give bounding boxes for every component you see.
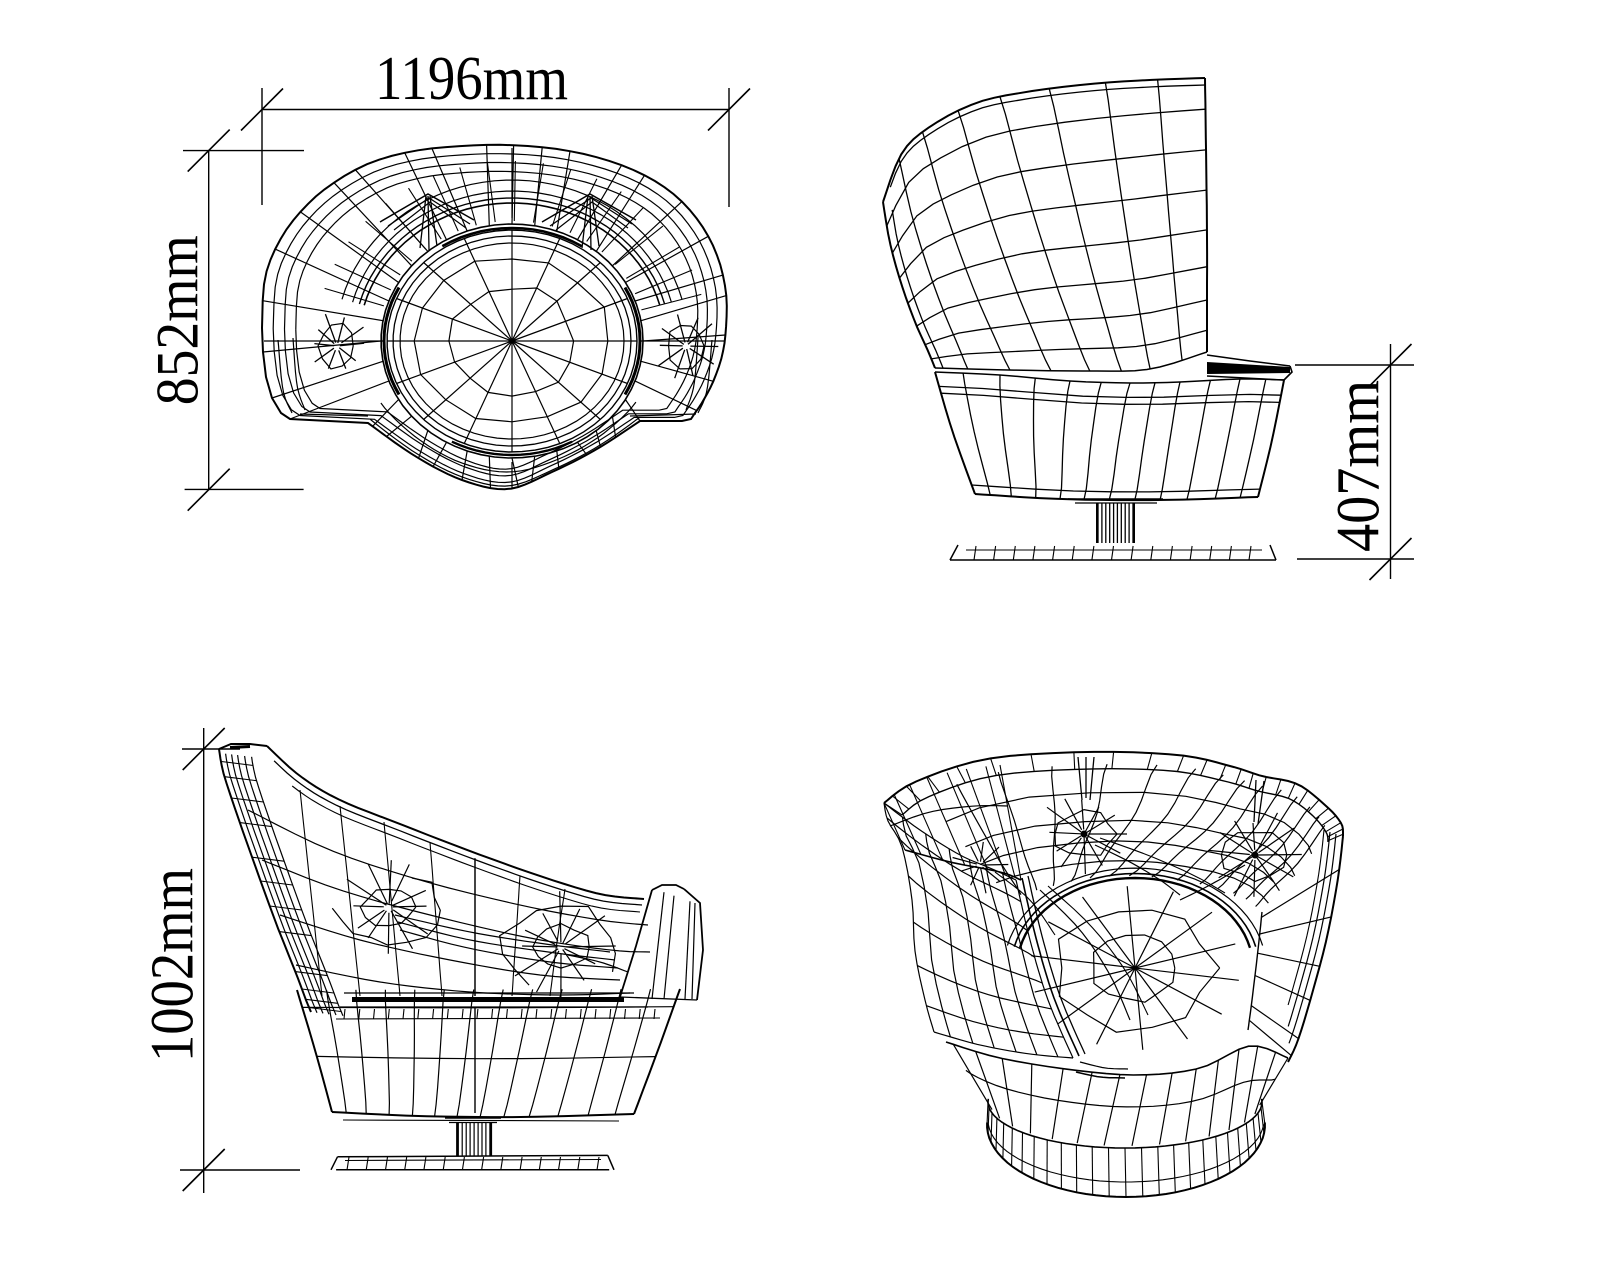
svg-text:407mm: 407mm [1326, 380, 1393, 552]
svg-text:1002mm: 1002mm [140, 868, 207, 1062]
svg-text:852mm: 852mm [144, 235, 210, 405]
svg-text:1196mm: 1196mm [375, 45, 568, 113]
